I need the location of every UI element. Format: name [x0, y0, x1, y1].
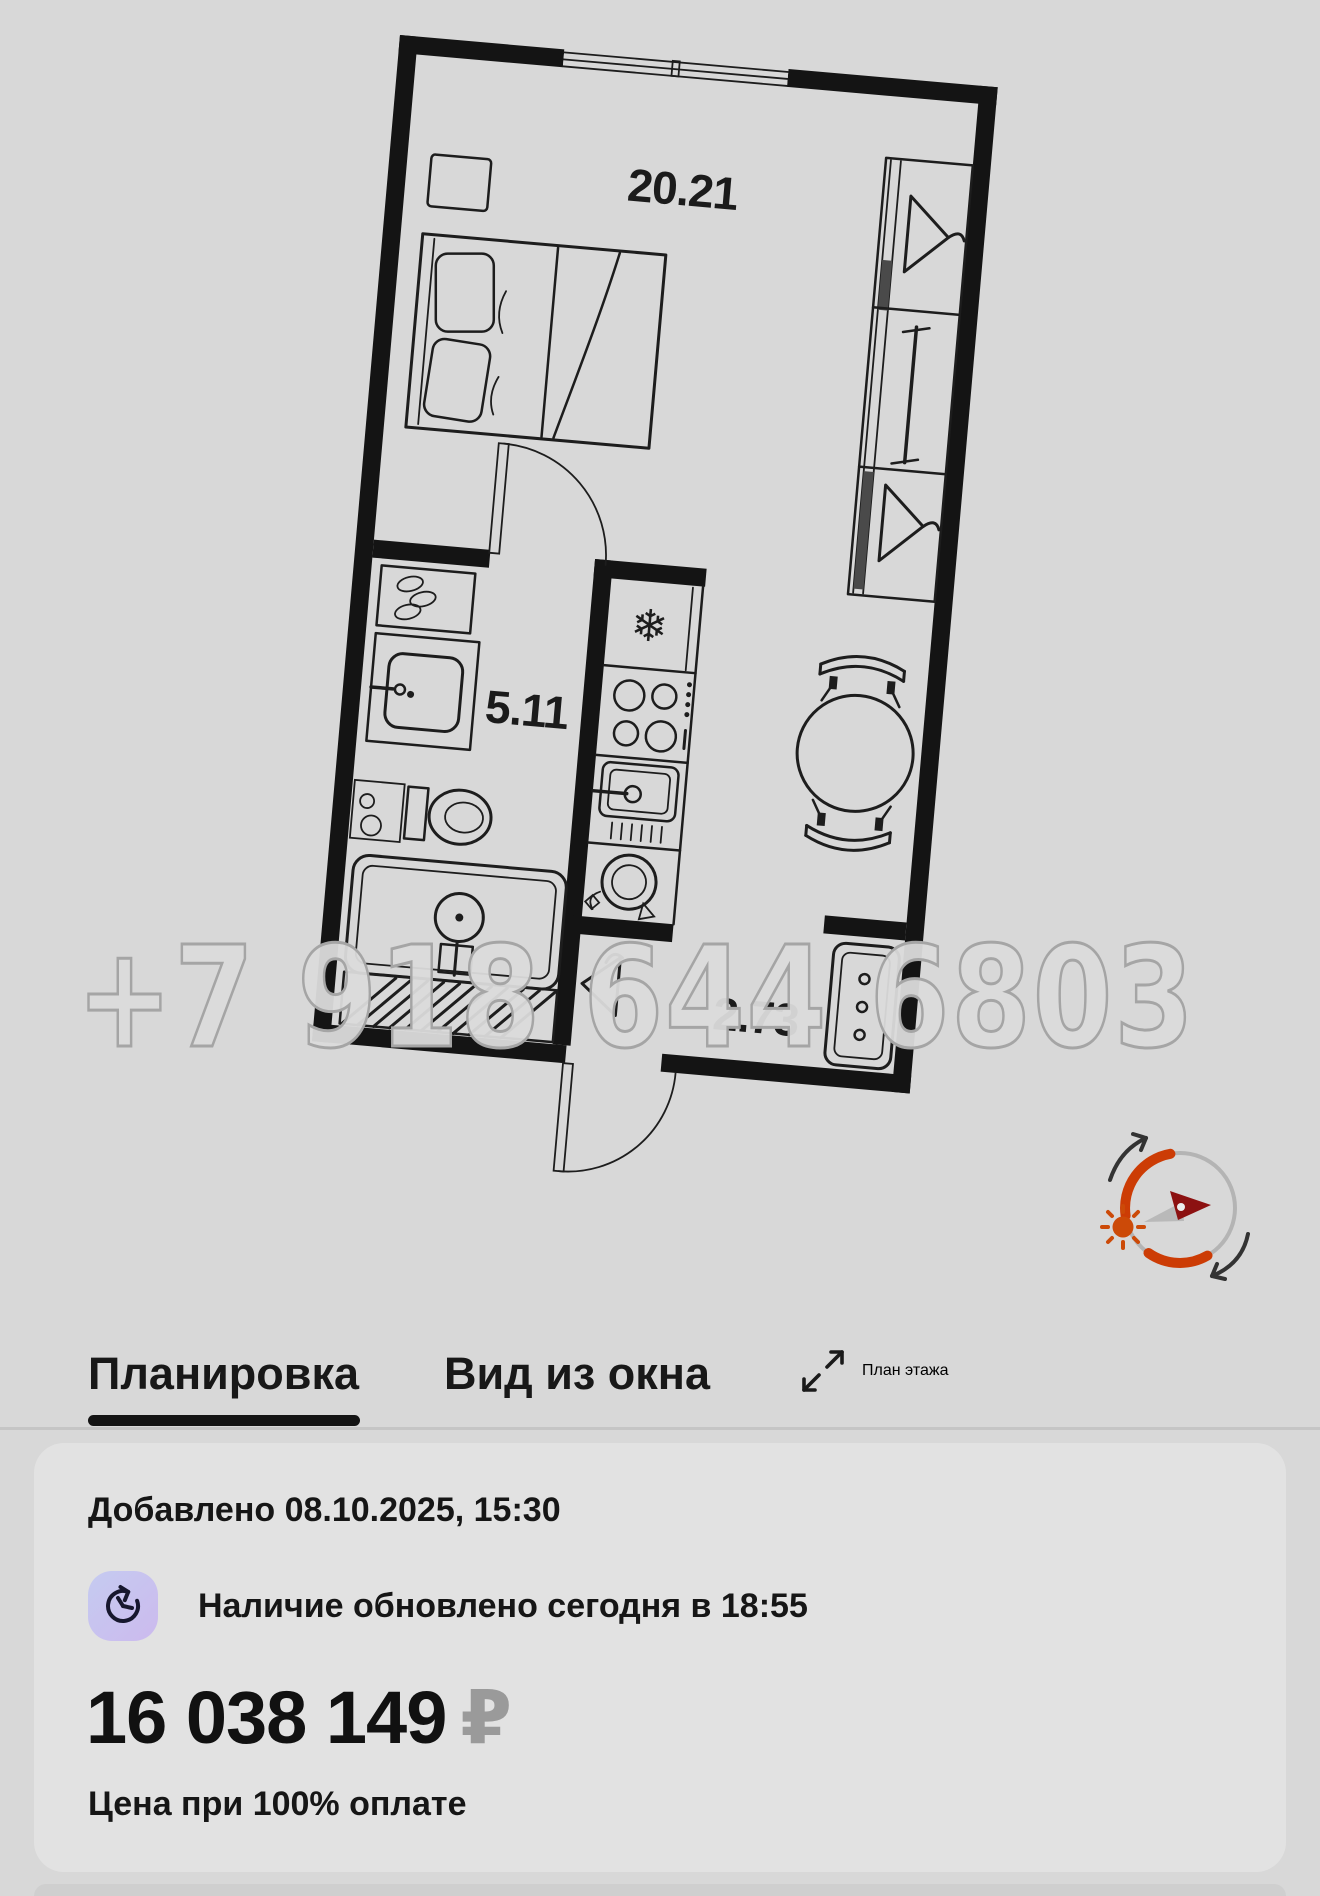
washing-machine-icon	[584, 852, 659, 921]
fridge-icon: ❄	[629, 599, 670, 653]
nightstand	[427, 154, 491, 211]
hanger-icon	[879, 485, 942, 566]
tab-plan-etazha[interactable]: План этажа	[800, 1348, 948, 1394]
watermark-phone: +7 918 644 6803	[76, 917, 1195, 1080]
sun-icon	[1102, 1206, 1144, 1248]
wardrobe-rail	[892, 326, 930, 466]
window-icon	[563, 49, 789, 87]
expand-icon[interactable]	[800, 1348, 846, 1394]
price-note: Цена при 100% оплате	[88, 1785, 466, 1824]
toilet-icon	[350, 780, 494, 850]
kitchen-sink-icon	[589, 761, 679, 844]
towel-shelf	[376, 565, 475, 633]
compass-icon	[1102, 1134, 1248, 1279]
dining-table	[789, 652, 921, 855]
tab-label: План этажа	[862, 1362, 948, 1380]
room-area-label: 5.11	[483, 680, 571, 739]
hanger-icon	[904, 196, 967, 277]
north-needle	[1144, 1191, 1211, 1222]
price-value: 16 038 149	[86, 1676, 446, 1759]
listing-info-card: Добавлено 08.10.2025, 15:30 Наличие обно…	[34, 1443, 1286, 1872]
price: 16 038 149₽	[86, 1675, 511, 1761]
added-date: Добавлено 08.10.2025, 15:30	[88, 1491, 561, 1530]
bathroom-sink-icon	[366, 633, 479, 750]
next-card-peek	[34, 1884, 1286, 1896]
bathroom-door	[489, 443, 615, 565]
entrance-door	[554, 1063, 676, 1180]
room-area-label: 20.21	[626, 159, 741, 220]
currency-symbol: ₽	[460, 1675, 511, 1761]
active-tab-indicator	[88, 1415, 360, 1426]
availability-row: Наличие обновлено сегодня в 18:55	[88, 1571, 808, 1641]
tab-planirovka[interactable]: Планировка	[88, 1348, 359, 1400]
availability-text: Наличие обновлено сегодня в 18:55	[198, 1587, 808, 1626]
clock-refresh-icon	[88, 1571, 158, 1641]
listing-screen: ❄	[0, 0, 1320, 1894]
tab-vid-iz-okna[interactable]: Вид из окна	[444, 1348, 710, 1400]
section-divider	[0, 1427, 1320, 1430]
stove-icon	[610, 676, 692, 754]
floor-plan-image[interactable]: ❄	[0, 0, 1320, 1330]
